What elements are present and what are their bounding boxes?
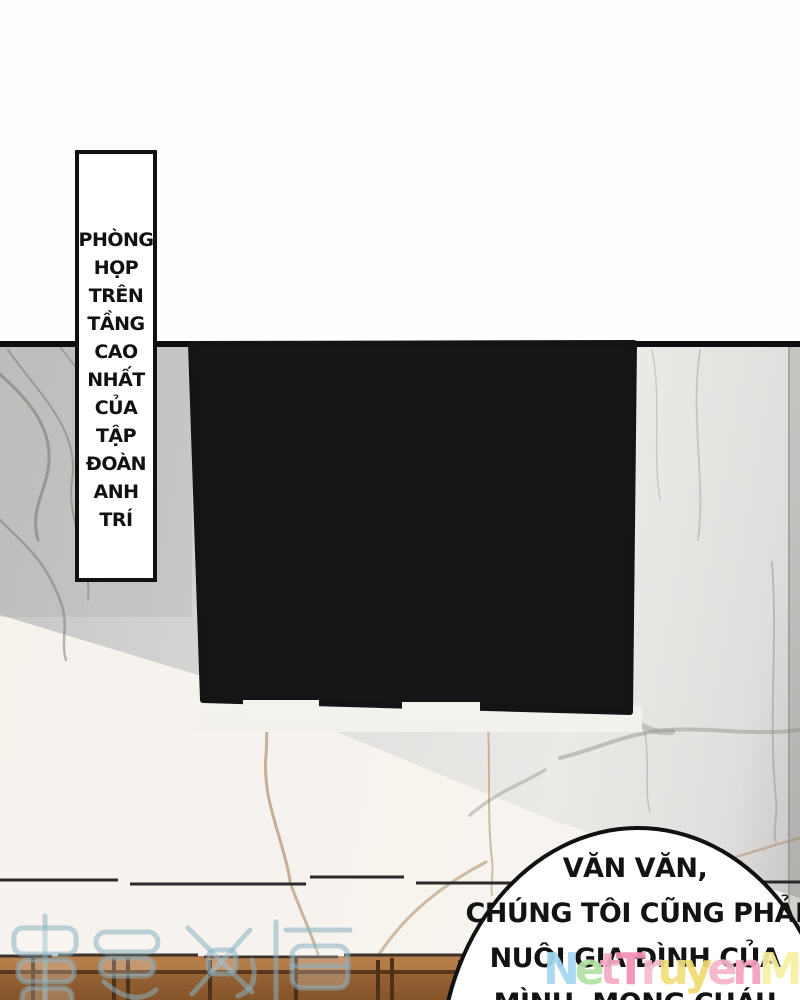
tv-stand-gap bbox=[402, 702, 480, 718]
comic-panel: PHÒNGHỌPTRÊNTẦNGCAONHẤTCỦATẬPĐOÀNANHTRÍ … bbox=[0, 0, 800, 1000]
tv-stand-gap bbox=[243, 700, 319, 718]
site-watermark: NetTruyenMOE bbox=[543, 948, 800, 992]
tv-screen bbox=[191, 343, 634, 712]
narration-caption-box: PHÒNGHỌPTRÊNTẦNGCAONHẤTCỦATẬPĐOÀNANHTRÍ bbox=[75, 150, 157, 582]
